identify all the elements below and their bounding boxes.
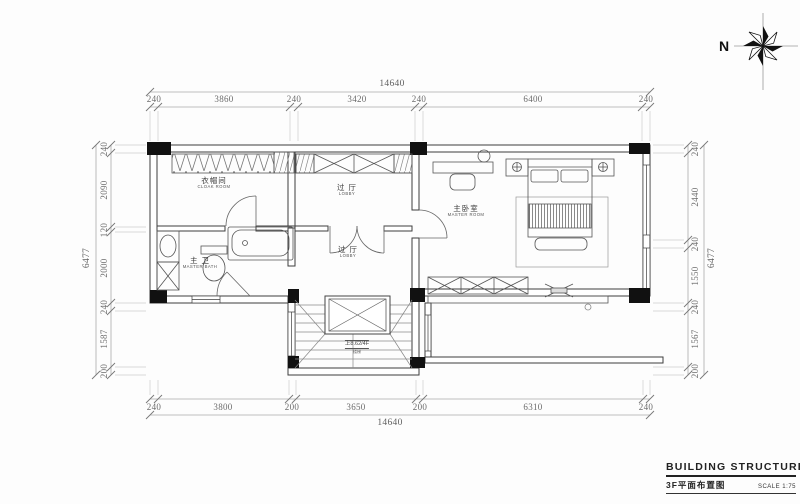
dim-right-6: 1567 xyxy=(690,329,700,348)
pillow xyxy=(531,170,558,182)
dim-right-4: 1550 xyxy=(690,266,700,285)
dim-top-1: 240 xyxy=(147,94,161,104)
north-label: N xyxy=(719,38,729,54)
sink-basin xyxy=(160,235,176,257)
dim-bottom-total: 14640 xyxy=(377,418,402,428)
dim-right-1: 240 xyxy=(690,142,700,156)
dim-left-7: 200 xyxy=(99,364,109,378)
dim-left-3: 120 xyxy=(99,223,109,237)
dim-top-2: 3860 xyxy=(214,94,233,104)
toilet-tank xyxy=(201,246,227,254)
drawing-title: BUILDING STRUCTURE xyxy=(666,461,796,477)
dim-right-3: 240 xyxy=(690,237,700,251)
room-label-lobby-lower: 过 厅 LOBBY xyxy=(338,246,358,260)
stair-core xyxy=(295,296,412,368)
dim-top-4: 3420 xyxy=(347,94,366,104)
title-block: BUILDING STRUCTURE 3F平面布置图 SCALE 1:75 xyxy=(666,461,796,494)
dim-bottom-6: 6310 xyxy=(523,402,542,412)
dim-top-5: 240 xyxy=(412,94,426,104)
shelf xyxy=(428,296,608,303)
dim-top-7: 240 xyxy=(639,94,653,104)
cloak-door xyxy=(226,196,256,226)
dim-bottom-7: 240 xyxy=(639,402,653,412)
master-bedroom-furniture xyxy=(428,150,614,310)
dim-top-total: 14640 xyxy=(379,79,404,89)
dim-right-7: 200 xyxy=(690,364,700,378)
dim-right-2: 2440 xyxy=(690,187,700,206)
room-label-cloak: 衣帽间 CLOAK ROOM xyxy=(195,177,234,191)
room-label-master-bed: 主卧室 MASTER ROOM xyxy=(444,205,487,219)
floorplan-drawing xyxy=(0,0,800,504)
dim-right-total: 6477 xyxy=(707,248,717,268)
lobby-cabinets xyxy=(296,154,412,173)
drawing-scale: SCALE 1:75 xyxy=(758,484,796,490)
dim-left-2: 2090 xyxy=(99,180,109,199)
double-door-right xyxy=(357,226,384,253)
drawing-name: 3F平面布置图 xyxy=(666,479,725,491)
dim-bottom-1: 240 xyxy=(147,402,161,412)
room-label-lobby-upper: 过 厅 LOBBY xyxy=(337,184,357,198)
dim-bottom-5: 200 xyxy=(413,402,427,412)
dim-bottom-2: 3800 xyxy=(213,402,232,412)
dim-left-5: 240 xyxy=(99,300,109,314)
room-label-master-bath: 主 卫 MASTER BATH xyxy=(180,257,221,271)
windows xyxy=(192,165,650,356)
dim-bottom-3: 200 xyxy=(285,402,299,412)
pillow xyxy=(561,170,588,182)
bed-bench xyxy=(535,238,587,250)
dim-left-1: 240 xyxy=(99,142,109,156)
chair xyxy=(450,174,475,190)
master-door xyxy=(419,210,447,238)
dim-bottom-4: 3650 xyxy=(346,402,365,412)
dim-top-3: 240 xyxy=(287,94,301,104)
bath-door xyxy=(217,272,227,296)
dim-right-5: 240 xyxy=(690,300,700,314)
bathroom-fixtures xyxy=(157,227,293,290)
dim-left-total: 6477 xyxy=(82,248,92,268)
ceiling-fixture xyxy=(551,288,567,293)
dim-left-4: 2000 xyxy=(99,258,109,277)
north-compass-icon xyxy=(734,13,798,90)
dim-top-6: 6400 xyxy=(523,94,542,104)
stair-note: 上8.62/4F 楼梯 xyxy=(345,340,369,354)
dim-left-6: 1587 xyxy=(99,329,109,348)
floorplan-page: 14640 240 3860 240 3420 240 6400 240 240… xyxy=(0,0,800,504)
cloak-wardrobe xyxy=(172,152,294,173)
bed-blanket xyxy=(529,204,591,228)
